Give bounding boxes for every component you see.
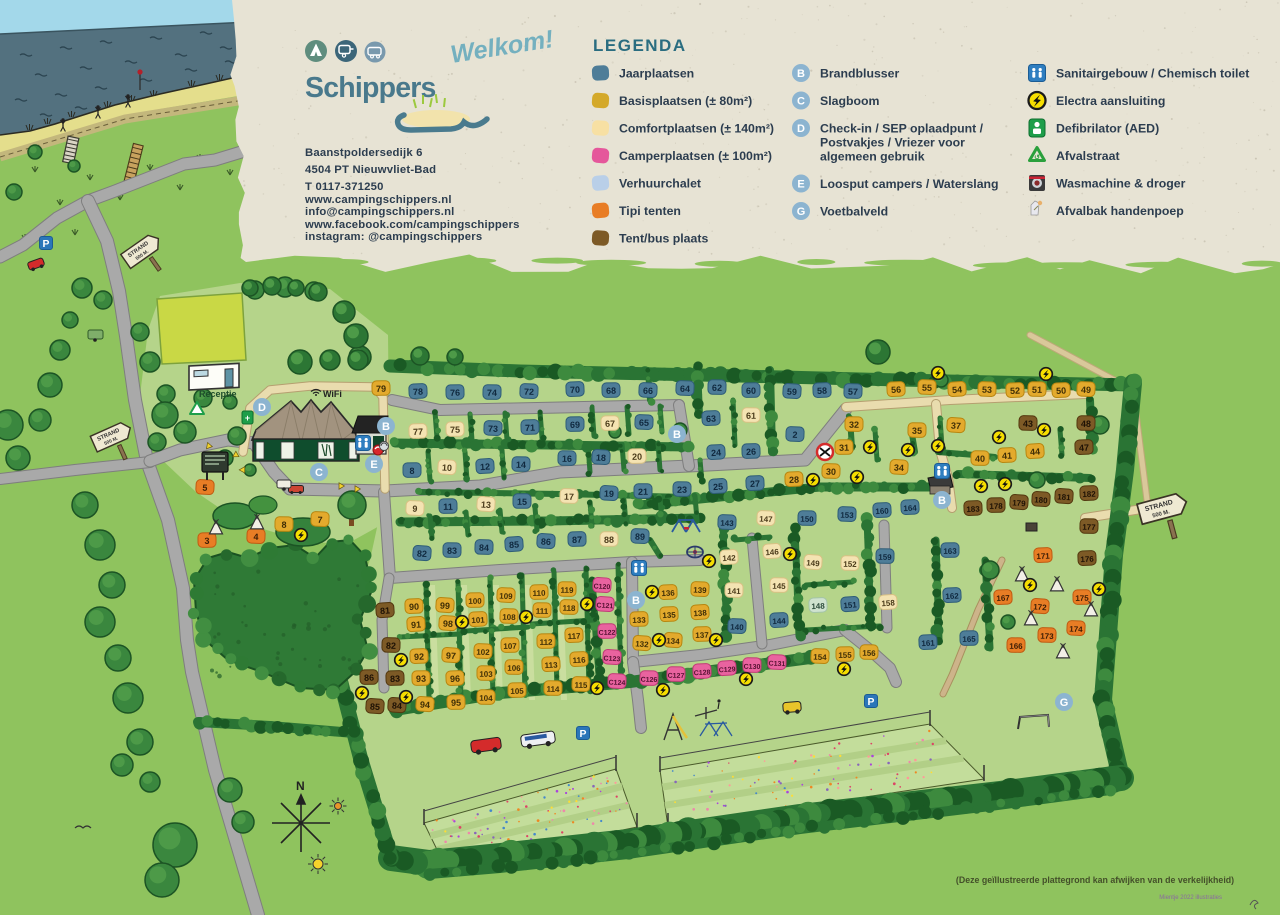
svg-text:83: 83 (390, 674, 400, 684)
svg-text:27: 27 (750, 479, 760, 489)
svg-text:C131: C131 (768, 661, 785, 669)
svg-text:183: 183 (966, 505, 980, 515)
svg-text:C: C (315, 467, 323, 479)
svg-text:140: 140 (730, 623, 744, 633)
svg-text:P: P (43, 239, 50, 250)
svg-text:D: D (258, 402, 266, 414)
svg-text:84: 84 (479, 543, 489, 553)
svg-text:7: 7 (317, 515, 322, 525)
svg-text:20: 20 (632, 452, 642, 462)
svg-text:37: 37 (951, 420, 962, 431)
svg-text:+: + (245, 413, 250, 423)
svg-text:Camperplaatsen (± 100m²): Camperplaatsen (± 100m²) (619, 149, 772, 163)
svg-text:31: 31 (839, 443, 849, 453)
svg-text:160: 160 (875, 506, 889, 516)
svg-text:C130: C130 (744, 664, 761, 671)
svg-text:Afvalstraat: Afvalstraat (1056, 149, 1120, 163)
svg-text:53: 53 (982, 385, 992, 395)
svg-text:25: 25 (713, 482, 724, 493)
svg-text:103: 103 (479, 670, 493, 679)
svg-text:12: 12 (480, 462, 491, 473)
svg-text:147: 147 (759, 515, 773, 525)
svg-text:74: 74 (487, 388, 497, 398)
svg-text:134: 134 (666, 636, 680, 646)
svg-text:61: 61 (746, 411, 756, 421)
svg-text:159: 159 (878, 553, 892, 562)
svg-text:WiFi: WiFi (323, 389, 342, 399)
svg-text:141: 141 (727, 587, 741, 596)
svg-text:8: 8 (281, 520, 286, 530)
svg-text:142: 142 (722, 553, 736, 563)
svg-text:137: 137 (695, 631, 709, 640)
svg-text:Miеntje 2022 illustraties: Miеntje 2022 illustraties (1159, 895, 1222, 901)
svg-text:G: G (797, 206, 806, 218)
svg-text:58: 58 (817, 386, 827, 396)
svg-text:56: 56 (891, 385, 901, 395)
svg-text:51: 51 (1032, 385, 1042, 395)
svg-text:Tipi tenten: Tipi tenten (619, 204, 681, 218)
svg-text:145: 145 (772, 582, 786, 591)
svg-text:Sanitairgebouw / Chemisch toil: Sanitairgebouw / Chemisch toilet (1056, 66, 1249, 80)
svg-text:15: 15 (517, 497, 527, 507)
svg-text:88: 88 (604, 535, 614, 545)
svg-text:71: 71 (525, 423, 535, 433)
svg-text:99: 99 (440, 600, 451, 611)
svg-text:92: 92 (414, 652, 424, 662)
svg-text:C128: C128 (694, 669, 711, 677)
svg-text:146: 146 (765, 547, 779, 557)
svg-text:66: 66 (643, 386, 653, 396)
svg-text:86: 86 (541, 537, 552, 548)
svg-text:172: 172 (1033, 602, 1047, 612)
svg-text:40: 40 (975, 454, 985, 464)
svg-text:Check-in / SEP oplaadpunt /: Check-in / SEP oplaadpunt / (820, 121, 984, 135)
svg-text:78: 78 (413, 387, 423, 397)
svg-text:(Deze geïllustreerde plattegro: (Deze geïllustreerde plattegrond kan afw… (956, 875, 1234, 885)
svg-text:5: 5 (202, 483, 208, 493)
svg-text:101: 101 (471, 615, 485, 625)
svg-text:T 0117-371250: T 0117-371250 (305, 181, 384, 193)
svg-text:47: 47 (1079, 443, 1089, 453)
svg-text:118: 118 (562, 604, 576, 613)
svg-text:166: 166 (1009, 642, 1023, 651)
svg-text:65: 65 (639, 418, 649, 428)
svg-text:156: 156 (862, 649, 876, 658)
svg-text:Jaarplaatsen: Jaarplaatsen (619, 66, 694, 80)
svg-text:info@campingschippers.nl: info@campingschippers.nl (305, 206, 455, 218)
svg-text:26: 26 (746, 447, 756, 457)
svg-text:52: 52 (1010, 386, 1020, 396)
svg-text:C126: C126 (641, 677, 658, 684)
svg-text:85: 85 (370, 701, 381, 712)
svg-text:97: 97 (446, 650, 457, 661)
svg-text:C129: C129 (719, 666, 736, 674)
svg-text:102: 102 (476, 648, 490, 657)
svg-text:Afvalbak handenpoep: Afvalbak handenpoep (1056, 204, 1184, 218)
svg-text:63: 63 (706, 414, 716, 424)
svg-text:77: 77 (413, 427, 423, 437)
svg-text:14: 14 (516, 460, 526, 470)
svg-text:113: 113 (544, 660, 558, 670)
svg-text:104: 104 (479, 694, 493, 703)
svg-text:151: 151 (843, 600, 857, 610)
svg-text:179: 179 (1012, 498, 1026, 508)
svg-text:95: 95 (451, 698, 461, 708)
svg-text:164: 164 (903, 503, 917, 513)
svg-text:67: 67 (605, 419, 615, 429)
svg-text:www.campingschippers.nl: www.campingschippers.nl (304, 194, 452, 206)
svg-text:P: P (580, 729, 587, 740)
svg-text:59: 59 (787, 387, 798, 398)
svg-text:C122: C122 (599, 630, 616, 637)
svg-text:98: 98 (443, 618, 454, 629)
svg-text:175: 175 (1075, 594, 1089, 603)
svg-text:C127: C127 (668, 673, 685, 680)
svg-text:109: 109 (499, 591, 513, 601)
svg-text:50: 50 (1056, 386, 1066, 396)
svg-text:132: 132 (635, 639, 649, 649)
svg-text:C: C (797, 96, 805, 108)
svg-text:178: 178 (989, 502, 1003, 511)
svg-text:19: 19 (604, 489, 615, 500)
svg-text:84: 84 (392, 700, 403, 711)
svg-text:82: 82 (417, 548, 428, 559)
svg-text:64: 64 (680, 384, 690, 394)
svg-text:176: 176 (1080, 555, 1094, 565)
svg-text:Loosput campers / Waterslang: Loosput campers / Waterslang (820, 177, 999, 191)
svg-text:91: 91 (411, 620, 422, 631)
svg-text:8: 8 (409, 466, 414, 476)
svg-text:Comfortplaatsen (± 140m²): Comfortplaatsen (± 140m²) (619, 121, 774, 135)
svg-text:73: 73 (488, 424, 498, 434)
svg-text:E: E (797, 179, 804, 191)
svg-text:133: 133 (632, 616, 646, 625)
svg-text:B: B (938, 495, 946, 507)
svg-text:83: 83 (447, 546, 457, 556)
svg-text:105: 105 (510, 687, 524, 696)
svg-text:Basisplaatsen (± 80m²): Basisplaatsen (± 80m²) (619, 94, 752, 108)
svg-text:Voetbalveld: Voetbalveld (820, 204, 888, 218)
svg-text:167: 167 (996, 593, 1010, 603)
svg-text:182: 182 (1082, 490, 1096, 500)
svg-text:D: D (797, 123, 805, 135)
svg-text:110: 110 (532, 589, 546, 598)
svg-text:43: 43 (1023, 419, 1033, 429)
svg-text:144: 144 (772, 616, 786, 626)
svg-text:115: 115 (574, 681, 588, 690)
svg-text:76: 76 (450, 388, 460, 398)
svg-text:C120: C120 (593, 583, 610, 591)
svg-text:18: 18 (596, 453, 607, 464)
svg-text:161: 161 (921, 638, 935, 648)
svg-text:32: 32 (849, 420, 859, 430)
svg-text:153: 153 (840, 511, 854, 520)
svg-text:13: 13 (481, 499, 492, 510)
svg-text:136: 136 (661, 588, 675, 598)
svg-text:C121: C121 (596, 602, 613, 610)
svg-text:173: 173 (1040, 632, 1054, 641)
svg-text:174: 174 (1069, 624, 1083, 634)
svg-text:C124: C124 (608, 679, 625, 687)
svg-text:139: 139 (693, 585, 707, 595)
svg-text:Verhuurchalet: Verhuurchalet (619, 176, 701, 190)
svg-text:181: 181 (1057, 492, 1071, 502)
svg-text:107: 107 (503, 642, 517, 651)
svg-text:60: 60 (746, 386, 756, 396)
svg-text:81: 81 (380, 605, 391, 616)
svg-text:119: 119 (560, 586, 574, 595)
svg-text:4: 4 (253, 532, 258, 542)
svg-text:Defibrilator (AED): Defibrilator (AED) (1056, 121, 1159, 135)
svg-text:4504 PT Nieuwvliet-Bad: 4504 PT Nieuwvliet-Bad (305, 164, 436, 176)
svg-text:48: 48 (1081, 419, 1091, 429)
svg-text:111: 111 (536, 607, 549, 616)
svg-text:94: 94 (420, 699, 431, 710)
svg-text:B: B (632, 595, 640, 607)
svg-text:21: 21 (638, 487, 648, 497)
svg-text:30: 30 (826, 467, 836, 477)
svg-text:49: 49 (1081, 385, 1091, 395)
svg-text:B: B (797, 68, 805, 80)
svg-text:100: 100 (468, 597, 482, 606)
svg-text:3: 3 (204, 536, 209, 546)
svg-text:E: E (370, 459, 377, 471)
svg-text:86: 86 (364, 673, 374, 683)
svg-text:68: 68 (606, 386, 616, 396)
svg-text:96: 96 (450, 674, 460, 684)
svg-text:28: 28 (789, 475, 799, 485)
svg-text:106: 106 (507, 664, 521, 673)
svg-text:Baanstpoldersedijk 6: Baanstpoldersedijk 6 (305, 147, 423, 159)
svg-text:138: 138 (693, 608, 707, 618)
svg-text:163: 163 (943, 547, 957, 556)
svg-text:Postvakjes / Vriezer voor: Postvakjes / Vriezer voor (820, 135, 965, 149)
svg-text:Wasmachine & droger: Wasmachine & droger (1056, 176, 1186, 190)
svg-text:171: 171 (1036, 552, 1050, 562)
svg-text:44: 44 (1030, 447, 1041, 458)
svg-text:87: 87 (572, 535, 582, 545)
svg-text:117: 117 (567, 632, 581, 642)
svg-text:↺: ↺ (1034, 155, 1040, 162)
svg-text:Schippers: Schippers (305, 72, 436, 104)
svg-text:70: 70 (570, 385, 580, 395)
svg-text:G: G (1060, 697, 1069, 709)
svg-text:135: 135 (662, 610, 676, 620)
svg-text:143: 143 (720, 519, 734, 528)
svg-text:116: 116 (572, 655, 586, 665)
svg-text:85: 85 (509, 539, 520, 550)
svg-text:16: 16 (562, 454, 572, 464)
svg-text:57: 57 (848, 387, 858, 397)
svg-text:90: 90 (409, 602, 419, 612)
svg-text:www.facebook.com/campingschipp: www.facebook.com/campingschippers (304, 219, 520, 231)
svg-text:154: 154 (813, 652, 827, 662)
svg-text:2: 2 (792, 430, 797, 440)
svg-text:72: 72 (524, 387, 534, 397)
svg-text:instagram: @campingschippers: instagram: @campingschippers (305, 231, 482, 243)
svg-text:B: B (382, 421, 390, 433)
svg-text:93: 93 (416, 674, 426, 684)
svg-text:148: 148 (811, 602, 825, 612)
svg-text:55: 55 (922, 383, 932, 393)
svg-text:17: 17 (564, 492, 574, 502)
svg-text:C123: C123 (603, 655, 620, 663)
svg-text:41: 41 (1002, 451, 1012, 461)
svg-text:114: 114 (546, 685, 560, 694)
svg-text:180: 180 (1034, 495, 1048, 505)
svg-text:N: N (296, 779, 305, 793)
svg-text:B: B (673, 429, 681, 441)
svg-text:23: 23 (677, 485, 687, 495)
svg-text:75: 75 (450, 425, 460, 435)
svg-text:35: 35 (912, 426, 922, 436)
svg-text:177: 177 (1082, 523, 1096, 532)
svg-text:165: 165 (962, 635, 976, 644)
svg-text:Receptie: Receptie (199, 389, 237, 399)
svg-text:82: 82 (386, 641, 396, 651)
svg-text:158: 158 (881, 598, 895, 608)
svg-text:24: 24 (711, 448, 722, 459)
svg-text:54: 54 (952, 385, 963, 396)
svg-text:62: 62 (712, 383, 722, 393)
svg-text:150: 150 (800, 515, 814, 524)
svg-text:112: 112 (540, 638, 554, 647)
svg-text:P: P (868, 697, 875, 708)
svg-text:algemeen gebruik: algemeen gebruik (820, 149, 925, 163)
svg-text:LEGENDA: LEGENDA (593, 36, 687, 55)
svg-text:162: 162 (945, 591, 959, 601)
svg-text:34: 34 (894, 463, 905, 474)
svg-text:149: 149 (806, 558, 820, 568)
svg-text:79: 79 (376, 384, 386, 394)
svg-text:Electra aansluiting: Electra aansluiting (1056, 94, 1165, 108)
svg-text:152: 152 (843, 560, 857, 569)
svg-text:155: 155 (838, 651, 852, 660)
svg-text:Brandblusser: Brandblusser (820, 66, 899, 80)
svg-text:Slagboom: Slagboom (820, 94, 880, 108)
svg-text:9: 9 (412, 504, 418, 514)
svg-text:89: 89 (635, 532, 645, 542)
svg-text:69: 69 (570, 420, 580, 430)
svg-text:108: 108 (502, 613, 516, 622)
svg-text:11: 11 (443, 502, 453, 512)
svg-text:10: 10 (442, 462, 453, 473)
svg-text:Tent/bus plaats: Tent/bus plaats (619, 231, 708, 245)
